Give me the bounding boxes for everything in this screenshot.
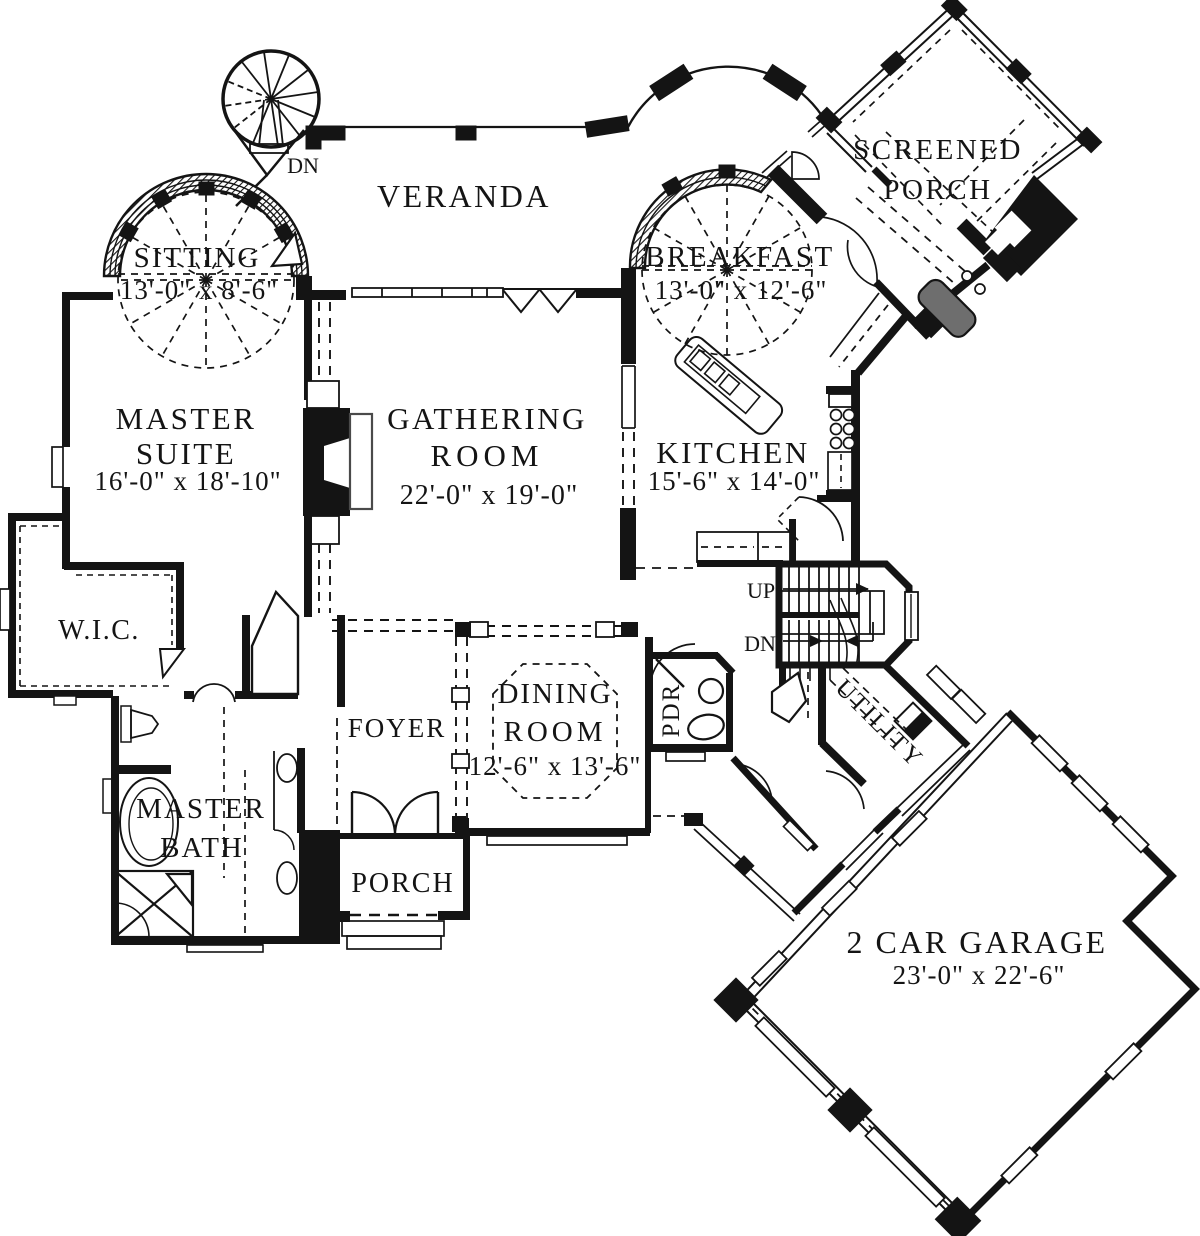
svg-text:DINING: DINING	[497, 678, 612, 710]
svg-text:W.I.C.: W.I.C.	[58, 615, 140, 646]
svg-text:23'-0" x 22'-6": 23'-0" x 22'-6"	[893, 960, 1066, 990]
svg-text:2 CAR GARAGE: 2 CAR GARAGE	[846, 924, 1107, 960]
svg-text:VERANDA: VERANDA	[377, 178, 551, 214]
svg-text:SCREENED: SCREENED	[853, 134, 1023, 166]
svg-text:MASTER: MASTER	[136, 793, 266, 825]
svg-text:KITCHEN: KITCHEN	[656, 435, 810, 470]
svg-text:13'-0" x 12'-6": 13'-0" x 12'-6"	[655, 275, 828, 305]
svg-text:12'-6" x 13'-6": 12'-6" x 13'-6"	[469, 751, 642, 781]
svg-text:22'-0" x 19'-0": 22'-0" x 19'-0"	[400, 480, 579, 511]
svg-text:DN: DN	[287, 153, 319, 178]
svg-text:ROOM: ROOM	[503, 716, 606, 748]
svg-text:UP: UP	[747, 578, 775, 603]
svg-text:16'-0" x 18'-10": 16'-0" x 18'-10"	[94, 466, 281, 496]
svg-text:ROOM: ROOM	[430, 438, 543, 473]
svg-text:BREAKFAST: BREAKFAST	[645, 241, 835, 273]
svg-text:PORCH: PORCH	[883, 174, 992, 206]
svg-text:15'-6" x 14'-0": 15'-6" x 14'-0"	[648, 466, 821, 496]
svg-text:13'-0" x 8'-6": 13'-0" x 8'-6"	[120, 275, 278, 305]
svg-text:SITTING: SITTING	[134, 242, 261, 274]
svg-text:PORCH: PORCH	[351, 868, 454, 899]
svg-text:GATHERING: GATHERING	[387, 401, 587, 436]
svg-text:FOYER: FOYER	[348, 713, 447, 743]
svg-text:MASTER: MASTER	[116, 401, 257, 436]
svg-text:DN: DN	[744, 631, 776, 656]
svg-text:BATH: BATH	[160, 832, 244, 864]
svg-text:PDR: PDR	[658, 683, 685, 738]
